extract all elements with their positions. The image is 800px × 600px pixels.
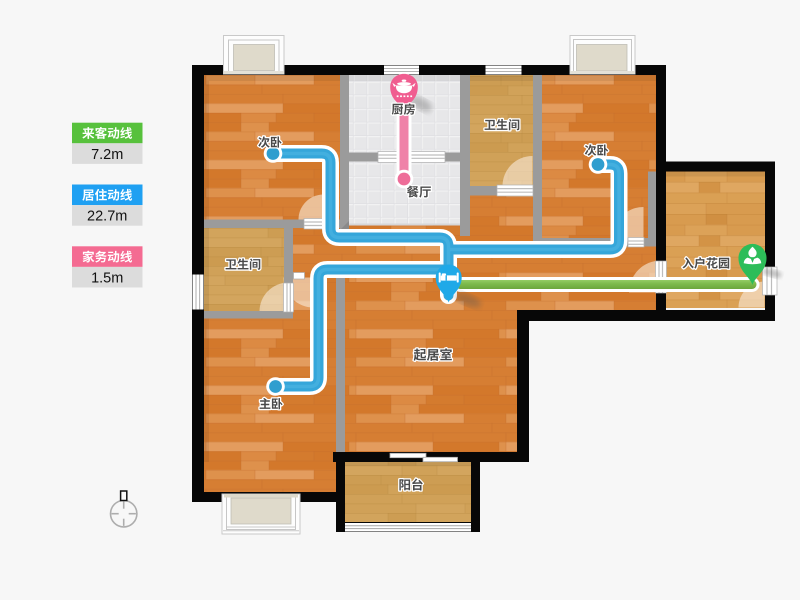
svg-text:7.2m: 7.2m — [91, 147, 123, 163]
svg-text:1.5m: 1.5m — [91, 271, 123, 287]
svg-text:22.7m: 22.7m — [87, 209, 127, 225]
